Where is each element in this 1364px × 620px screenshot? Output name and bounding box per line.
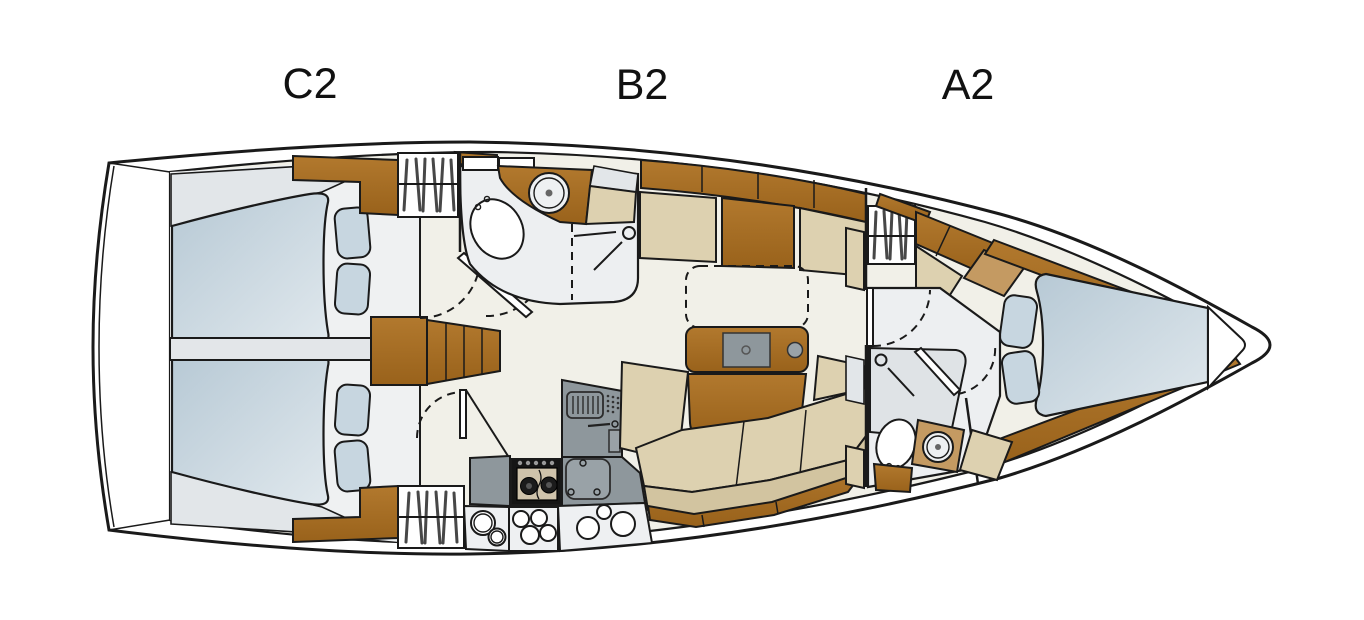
burner-center [546,482,552,488]
forward-wood-wedge [874,464,912,492]
companionway-cabinet [371,317,427,385]
port-settee-left [640,192,716,262]
table-inset [723,333,770,367]
aft-head-bench [586,186,636,224]
washbasin-drain [546,190,553,197]
counter-hole [513,511,529,527]
counter-hole [540,525,556,541]
port-settee-cabinet [722,198,794,268]
counter-hole [531,510,547,526]
sink-icon [577,517,599,539]
sideboard-shelf [846,446,864,488]
pillow [999,294,1039,349]
zone-label-c2: C2 [283,60,338,108]
forward-head-door-leaf [867,288,873,346]
counter-hole [521,526,539,544]
pillow [334,263,370,315]
locker-hatch [463,157,498,170]
zone-label-a2: A2 [942,61,995,109]
cup-holder [788,343,803,358]
yacht-deck-plan-page: C2 B2 A2 [0,0,1364,620]
washbasin-drain [935,444,941,450]
fridge-lid [566,459,610,499]
zone-label-b2: B2 [616,61,669,109]
yacht-deck-plan: C2 B2 A2 [0,0,1364,620]
sideboard-shelf [846,228,864,290]
aft-cabin-port [170,156,420,344]
pillow [334,440,371,493]
pillow [334,384,370,436]
pillow [334,207,371,260]
burner-center [526,483,532,489]
sink-icon [611,512,635,536]
galley-counter-left [470,456,510,506]
pillow [1001,350,1041,405]
sideboard-shelf-gray [846,356,864,404]
counter-hole [597,505,611,519]
aft-cabin-stbd-door-leaf [460,390,466,438]
aft-cabins-bulkhead-band [170,338,372,360]
side-bin [609,430,620,452]
zone-labels: C2 B2 A2 [283,60,995,109]
